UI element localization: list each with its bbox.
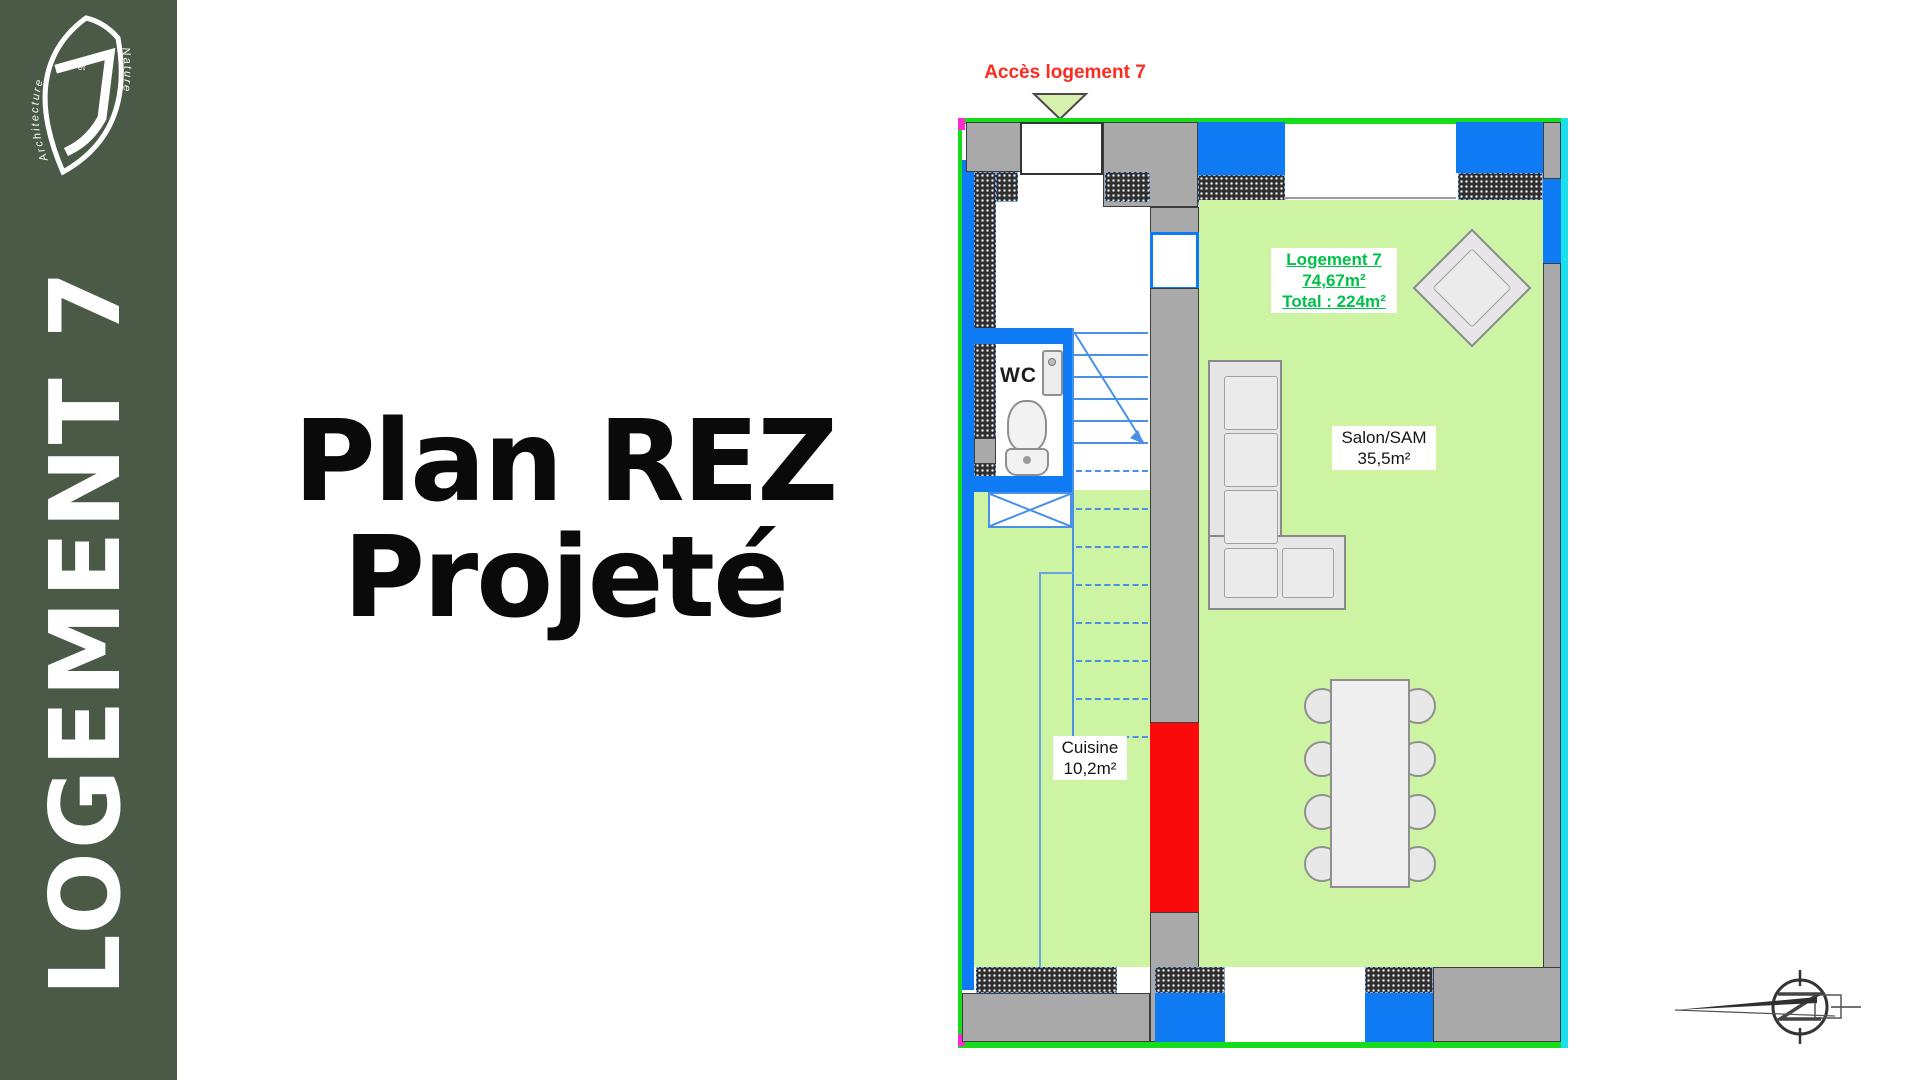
page-title-line2: Projeté	[190, 520, 940, 636]
hatch-bottom-left	[976, 967, 1117, 993]
toilet-bowl	[1007, 400, 1047, 452]
wc-label: WC	[1000, 364, 1037, 388]
left-wall-blue	[962, 160, 974, 990]
stair-tread-dashed	[1076, 698, 1148, 700]
kitchen-floor	[974, 490, 1150, 967]
access-label: Accès logement 7	[980, 62, 1150, 84]
window-right	[1543, 179, 1561, 263]
corner-mark-top-left	[958, 118, 965, 130]
cuisine-label: Cuisine 10,2m²	[1053, 736, 1127, 780]
north-compass-icon	[1665, 950, 1915, 1070]
closet-box	[988, 492, 1072, 528]
toilet-flush-button	[1023, 456, 1031, 464]
sofa-cushion	[1224, 433, 1278, 487]
armchair-cushion	[1432, 248, 1511, 327]
wall-bottom-right	[1433, 967, 1561, 1042]
sofa-cushion	[1282, 548, 1334, 598]
opening-lintel-line	[1285, 197, 1456, 199]
dining-table	[1330, 679, 1410, 888]
window-bottom-1	[1155, 993, 1225, 1042]
sofa-cushion	[1224, 490, 1278, 544]
salon-label-name: Salon/SAM	[1336, 427, 1432, 448]
salon-label: Salon/SAM 35,5m²	[1332, 426, 1436, 470]
hatch-bottom-mid-2	[1365, 967, 1433, 993]
kitchen-counter-line-v	[1039, 572, 1041, 990]
window-top-1	[1198, 122, 1285, 175]
cuisine-label-area: 10,2m²	[1057, 758, 1123, 779]
cuisine-label-name: Cuisine	[1057, 737, 1123, 758]
salon-label-area: 35,5m²	[1336, 448, 1432, 469]
wc-wall-bottom	[974, 476, 1072, 492]
unit-label-total: Total : 224m²	[1275, 291, 1393, 312]
stair-tread-dashed	[1076, 660, 1148, 662]
wall-top-right-corner	[1543, 122, 1561, 179]
spine-wall-middle	[1150, 288, 1199, 723]
unit-label-area: 74,67m²	[1275, 270, 1393, 291]
architecture-nature-logo-icon: Architecture Nature et	[10, 10, 160, 180]
sidebar: Architecture Nature et LOGEMENT 7	[0, 0, 177, 1080]
entrance-recess	[1020, 122, 1103, 175]
page-title: Plan REZ Projeté	[190, 404, 940, 637]
plan-border-right	[1561, 118, 1568, 1048]
hatch-top-hall-right	[1105, 172, 1150, 202]
sofa-cushion	[1224, 376, 1278, 430]
sidebar-vertical-title: LOGEMENT 7	[26, 242, 156, 1022]
window-bottom-2	[1365, 993, 1433, 1042]
spine-internal-window	[1150, 232, 1199, 290]
wall-left-break-1	[974, 438, 996, 464]
unit-label-name: Logement 7	[1275, 249, 1393, 270]
wall-bottom-left	[962, 993, 1150, 1042]
closet-cross-icon	[990, 494, 1070, 526]
hatch-top-hall-left	[996, 172, 1018, 202]
stair-tread-dashed	[1076, 470, 1148, 472]
hatch-bottom-mid-1	[1155, 967, 1225, 993]
wc-sink	[1042, 350, 1063, 396]
stair-tread-dashed	[1076, 508, 1148, 510]
spine-wall-red-highlight	[1150, 723, 1199, 912]
logo-word-et: et	[78, 62, 86, 72]
spine-wall-top	[1150, 207, 1199, 234]
page-title-line1: Plan REZ	[190, 404, 940, 520]
stair-tread-dashed	[1076, 546, 1148, 548]
plan-border-bottom	[958, 1042, 1568, 1048]
wc-wall-top	[974, 328, 1072, 344]
stair-tread-dashed	[1076, 622, 1148, 624]
wall-top-left	[966, 122, 1022, 172]
stair-direction-arrow	[1072, 328, 1150, 458]
stair-tread-dashed	[1076, 584, 1148, 586]
sofa-cushion	[1224, 548, 1278, 598]
wall-right	[1543, 263, 1561, 1042]
wc-sink-drain	[1048, 358, 1056, 366]
floor-plan: WC	[958, 118, 1568, 1048]
window-top-2	[1456, 122, 1543, 173]
unit-label: Logement 7 74,67m² Total : 224m²	[1271, 248, 1397, 313]
kitchen-counter-line-h	[1039, 572, 1073, 574]
hatch-under-window-2	[1458, 173, 1543, 200]
